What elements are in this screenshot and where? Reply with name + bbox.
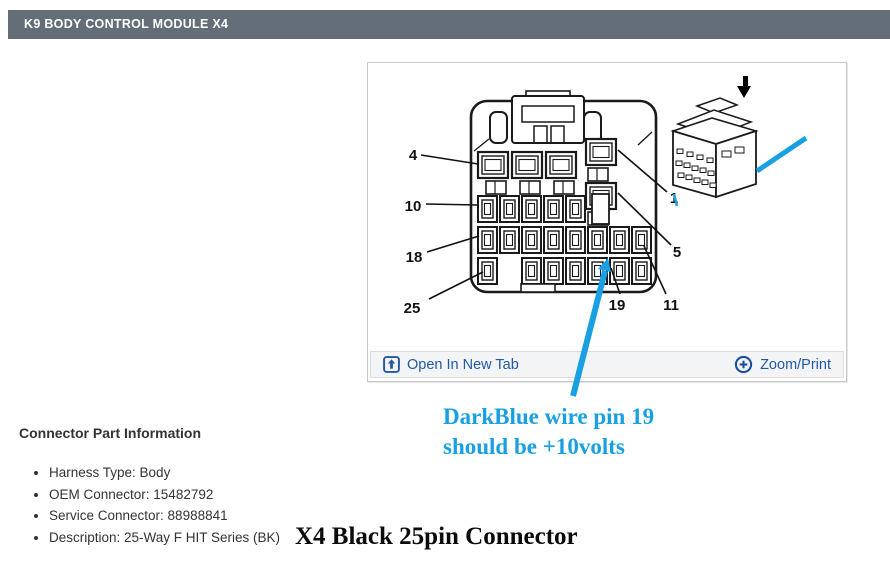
connector-caption: X4 Black 25pin Connector — [295, 523, 578, 551]
zoom-plus-icon — [734, 355, 753, 374]
part-info-list: Harness Type: Body OEM Connector: 154827… — [19, 462, 280, 548]
page: K9 BODY CONTROL MODULE X4 — [0, 0, 890, 572]
viewer-toolbar: Open In New Tab Zoom/Print — [370, 351, 844, 378]
module-header-bar: K9 BODY CONTROL MODULE X4 — [8, 10, 890, 39]
open-in-new-tab-icon — [383, 356, 400, 373]
pin-label-1: 1 — [670, 190, 678, 207]
open-in-new-tab-link[interactable]: Open In New Tab — [383, 356, 519, 373]
connector-pinout-diagram: 4 10 18 25 1 5 19 11 — [368, 63, 846, 351]
pin-label-19: 19 — [609, 297, 626, 314]
pin-label-4: 4 — [409, 147, 418, 164]
part-info-item-desc: Description: 25-Way F HIT Series (BK) — [49, 527, 280, 549]
pin-label-5: 5 — [673, 244, 681, 261]
pin-label-10: 10 — [405, 198, 422, 215]
part-info-item-oem: OEM Connector: 15482792 — [49, 484, 280, 506]
zoom-print-label: Zoom/Print — [760, 357, 831, 373]
connector-part-info: Connector Part Information Harness Type:… — [19, 425, 280, 548]
connector-body — [471, 91, 656, 292]
diagram-viewer-panel: 4 10 18 25 1 5 19 11 — [367, 62, 847, 382]
part-info-item-service: Service Connector: 88988841 — [49, 505, 280, 527]
open-in-new-tab-label: Open In New Tab — [407, 357, 519, 373]
annotation-line-1: DarkBlue wire pin 19 — [443, 402, 654, 432]
pin-label-11: 11 — [663, 297, 679, 314]
part-info-item-harness: Harness Type: Body — [49, 462, 280, 484]
pin-label-25: 25 — [404, 300, 421, 317]
part-info-heading: Connector Part Information — [19, 425, 280, 441]
connector-3d-view — [673, 76, 756, 197]
down-arrow-icon — [743, 76, 748, 87]
module-title: K9 BODY CONTROL MODULE X4 — [8, 10, 890, 39]
pin-label-18: 18 — [406, 249, 423, 266]
annotation-note: DarkBlue wire pin 19 should be +10volts — [443, 402, 654, 462]
zoom-print-link[interactable]: Zoom/Print — [734, 355, 831, 374]
annotation-line-2: should be +10volts — [443, 432, 654, 462]
